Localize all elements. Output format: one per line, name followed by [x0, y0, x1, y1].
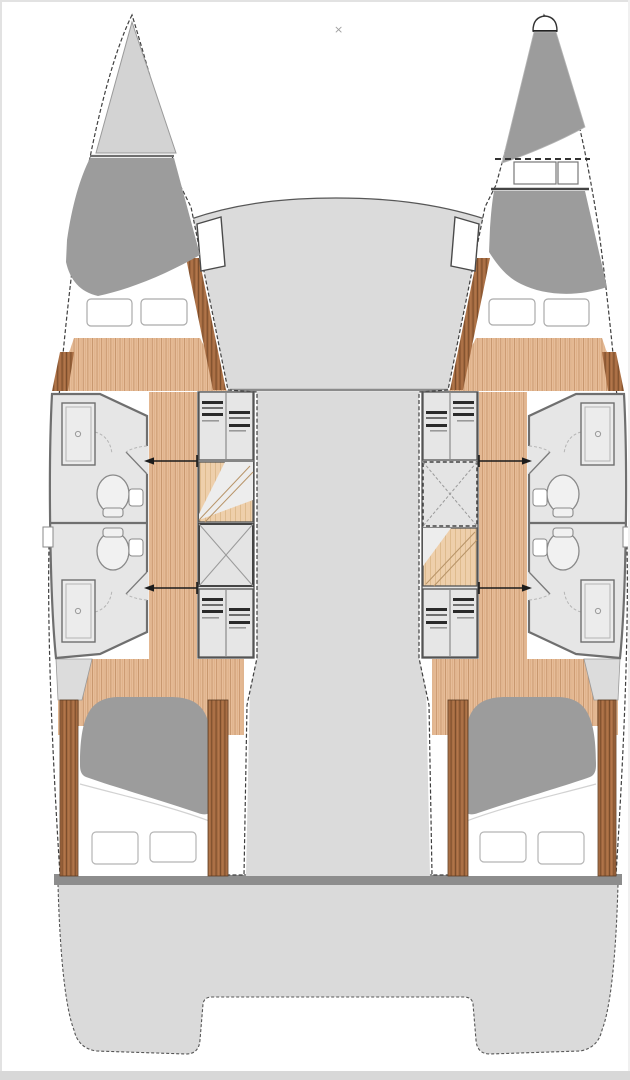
starboard-companionway-steps [423, 528, 477, 586]
starboard-hull [419, 15, 630, 876]
port-hull [43, 15, 257, 876]
foredeck [191, 198, 485, 391]
bridgedeck [246, 392, 430, 876]
stern-platform [58, 884, 618, 1054]
catamaran-floor-plan: × [0, 0, 630, 1080]
starboard-storage-hatch [423, 462, 477, 526]
frame-left [0, 0, 2, 1080]
forepeak-berth-section [558, 162, 578, 184]
port-storage-hatch [199, 524, 253, 586]
floor-plan-svg: × [0, 0, 630, 1080]
forepeak-berth [514, 162, 556, 184]
bottom-bar [0, 1071, 630, 1080]
starboard-bow-cap [533, 16, 557, 31]
port-companionway-steps [199, 462, 253, 522]
close-marker: × [334, 23, 343, 36]
frame-top [0, 0, 630, 2]
